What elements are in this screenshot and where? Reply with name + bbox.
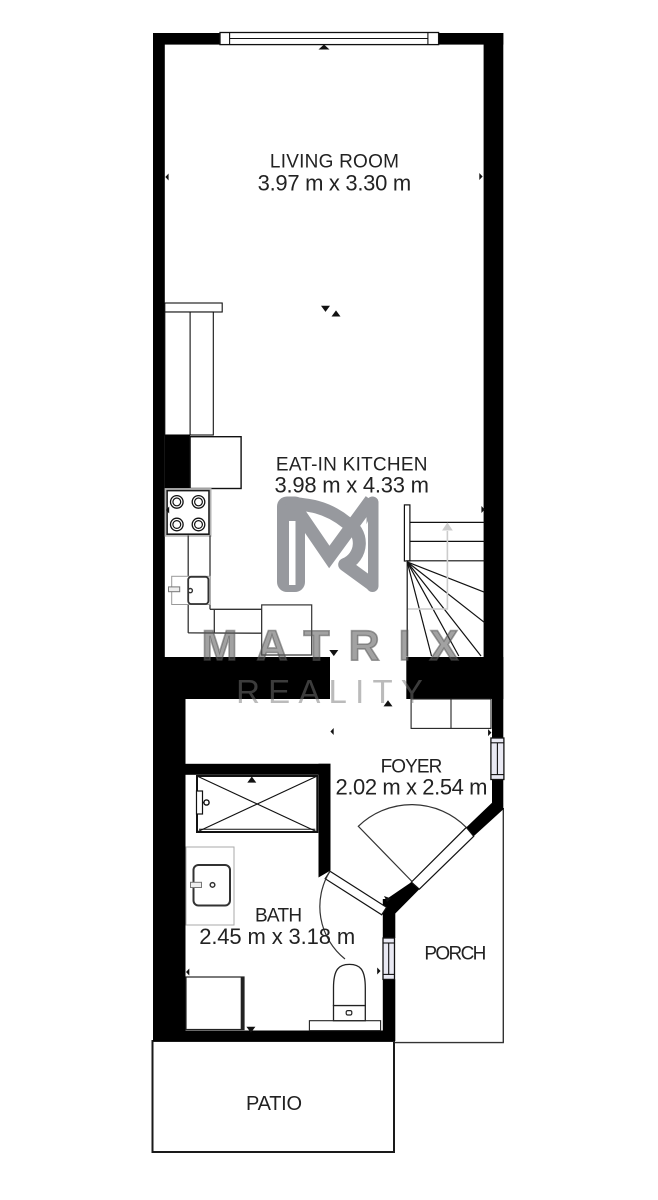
svg-text:REALITY: REALITY — [236, 673, 431, 710]
svg-text:2.45 m x 3.18 m: 2.45 m x 3.18 m — [199, 924, 355, 949]
svg-text:MATRIX: MATRIX — [202, 622, 478, 670]
svg-text:LIVING ROOM: LIVING ROOM — [270, 151, 399, 172]
svg-text:2.02 m x 2.54 m: 2.02 m x 2.54 m — [336, 775, 488, 800]
svg-text:3.98 m x 4.33 m: 3.98 m x 4.33 m — [274, 473, 429, 498]
svg-text:3.97 m x 3.30 m: 3.97 m x 3.30 m — [258, 171, 412, 196]
svg-text:PORCH: PORCH — [424, 944, 486, 965]
svg-text:PATIO: PATIO — [246, 1093, 302, 1115]
